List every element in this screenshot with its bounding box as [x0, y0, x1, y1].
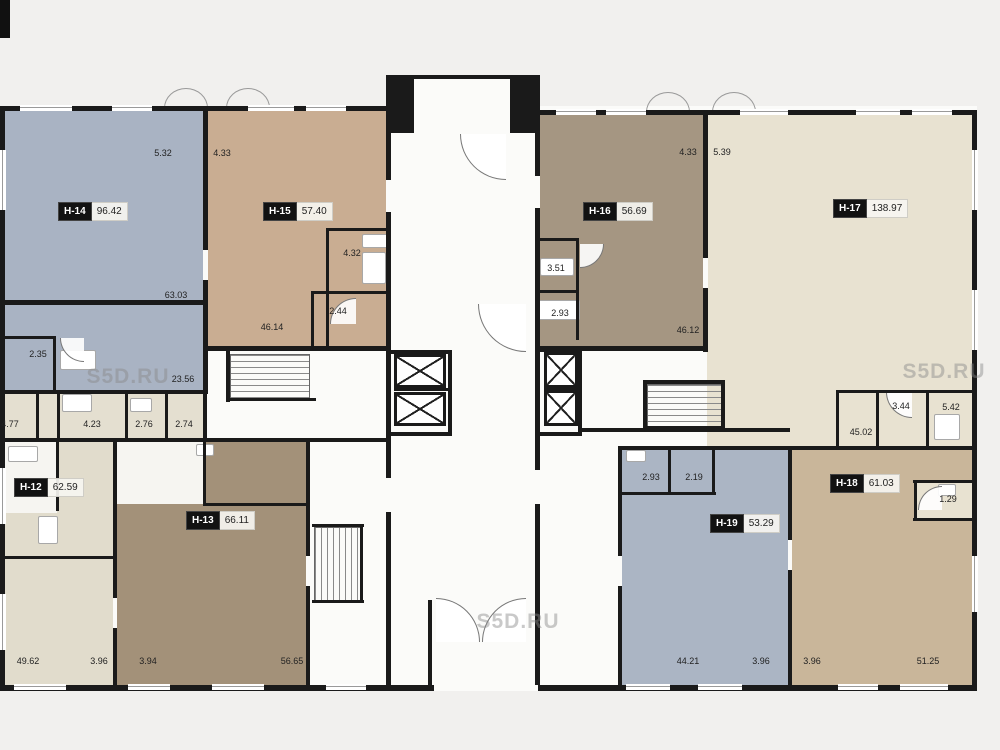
wall: [538, 238, 578, 241]
wall: [390, 432, 452, 436]
wall: [125, 392, 128, 439]
wall: [535, 75, 540, 689]
wall: [643, 380, 647, 430]
window: [912, 109, 952, 115]
dimension-label: 44.21: [677, 656, 700, 666]
door-gap: [703, 258, 708, 288]
unit-area-label: 53.29: [744, 514, 780, 533]
balcony-arc: [646, 92, 690, 112]
wall: [311, 291, 314, 348]
fixture: [626, 450, 646, 462]
wall: [311, 291, 390, 294]
wall: [578, 428, 790, 432]
unit-badge-h-19[interactable]: H-1953.29: [710, 514, 780, 533]
door-gap: [113, 598, 117, 628]
window: [112, 105, 152, 111]
window: [0, 150, 6, 210]
window: [128, 684, 170, 690]
fixture: [934, 414, 960, 440]
dimension-label: 3.94: [139, 656, 157, 666]
dimension-label: 56.65: [281, 656, 304, 666]
unit-id-label: H-18: [830, 474, 864, 493]
unit-id-label: H-19: [710, 514, 744, 533]
window: [248, 105, 294, 111]
room-area: [0, 392, 204, 438]
window: [606, 109, 646, 115]
window: [856, 109, 900, 115]
dimension-label: 46.14: [261, 322, 284, 332]
watermark: S5D.RU: [476, 610, 559, 634]
wall: [360, 524, 363, 603]
dimension-label: 3.96: [90, 656, 108, 666]
wall: [618, 492, 716, 495]
door-gap: [386, 180, 391, 212]
unit-badge-h-18[interactable]: H-1861.03: [830, 474, 900, 493]
unit-area-label: 61.03: [864, 474, 900, 493]
dimension-label: 4.77: [1, 419, 19, 429]
wall: [390, 350, 452, 354]
door-gap: [535, 470, 540, 504]
fixture: [362, 234, 388, 248]
dimension-label: 5.42: [942, 402, 960, 412]
wall: [448, 350, 452, 436]
unit-badge-h-15[interactable]: H-1557.40: [263, 202, 333, 221]
unit-area-label: 56.69: [617, 202, 653, 221]
unit-badge-h-17[interactable]: H-17138.97: [833, 199, 908, 218]
wall: [0, 556, 113, 559]
wall: [643, 380, 725, 384]
dimension-label: 4.32: [343, 248, 361, 258]
balcony-arc: [164, 88, 208, 108]
room-area: [116, 441, 204, 504]
dimension-label: 1.29: [939, 494, 957, 504]
unit-id-label: H-15: [263, 202, 297, 221]
wall: [538, 290, 578, 293]
unit-id-label: H-16: [583, 202, 617, 221]
fixture: [8, 446, 38, 462]
unit-area-label: 138.97: [867, 199, 909, 218]
dimension-label: 4.33: [213, 148, 231, 158]
wall: [57, 392, 60, 439]
window: [900, 684, 948, 690]
wall: [544, 388, 580, 391]
stairs: [230, 354, 310, 400]
wall: [203, 503, 306, 506]
wall: [428, 600, 432, 686]
window: [212, 684, 264, 690]
unit-badge-h-14[interactable]: H-1496.42: [58, 202, 128, 221]
unit-badge-h-16[interactable]: H-1656.69: [583, 202, 653, 221]
unit-id-label: H-13: [186, 511, 220, 530]
dimension-label: 3.96: [803, 656, 821, 666]
dimension-label: 3.44: [892, 401, 910, 411]
wall: [388, 75, 414, 133]
dimension-label: 2.19: [685, 472, 703, 482]
dimension-label: 49.62: [17, 656, 40, 666]
stairs: [314, 527, 362, 602]
wall: [386, 75, 391, 689]
wall: [165, 392, 168, 439]
unit-id-label: H-12: [14, 478, 48, 497]
dimension-label: 2.44: [329, 306, 347, 316]
window: [0, 468, 6, 524]
dimension-label: 5.39: [713, 147, 731, 157]
door-gap: [535, 176, 540, 208]
door-gap: [386, 478, 391, 512]
unit-area-label: 96.42: [92, 202, 128, 221]
wall: [226, 398, 316, 401]
wall: [326, 228, 329, 348]
dimension-label: 2.93: [642, 472, 660, 482]
dimension-label: 23.56: [172, 374, 195, 384]
window: [626, 684, 670, 690]
dimension-label: 5.32: [154, 148, 172, 158]
wall: [578, 348, 582, 436]
wall: [540, 348, 582, 352]
wall: [876, 390, 879, 450]
door-gap: [788, 540, 792, 570]
wall: [836, 390, 975, 393]
unit-id-label: H-17: [833, 199, 867, 218]
window: [838, 684, 878, 690]
window: [306, 105, 346, 111]
window: [698, 684, 742, 690]
unit-area-label: 66.11: [220, 511, 255, 530]
unit-area-label: 62.59: [48, 478, 84, 497]
wall: [0, 300, 205, 305]
wall: [326, 228, 390, 231]
wall: [226, 350, 230, 402]
wall: [56, 441, 59, 511]
fixture: [362, 252, 386, 284]
fixture: [38, 516, 58, 544]
unit-region-h19[interactable]: [621, 449, 789, 686]
door-gap: [203, 250, 208, 280]
wall: [0, 336, 55, 339]
wall: [703, 110, 708, 352]
window: [14, 684, 66, 690]
dimension-label: 51.25: [917, 656, 940, 666]
watermark: S5D.RU: [902, 360, 985, 384]
wall: [113, 441, 117, 689]
wall: [53, 336, 56, 392]
elevator-shaft: [544, 390, 578, 426]
wall: [312, 524, 364, 527]
dimension-label: 45.02: [850, 427, 873, 437]
wall: [203, 346, 390, 351]
wall: [721, 380, 725, 430]
unit-badge-h-12[interactable]: H-1262.59: [14, 478, 84, 497]
dimension-label: 4.33: [679, 147, 697, 157]
dimension-label: 2.76: [135, 419, 153, 429]
window: [740, 109, 788, 115]
door-gap: [306, 556, 310, 586]
wall: [510, 75, 536, 133]
floor-plan-canvas: 5.324.3363.0346.142.444.322.3523.564.774…: [0, 0, 1000, 750]
wall: [913, 480, 975, 483]
window: [556, 109, 596, 115]
elevator-shaft: [394, 354, 446, 388]
wall: [712, 450, 715, 494]
wall: [394, 388, 448, 391]
wall: [576, 238, 579, 340]
unit-badge-h-13[interactable]: H-1366.11: [186, 511, 255, 530]
fixture: [62, 394, 92, 412]
wall: [618, 446, 977, 450]
wall: [926, 390, 929, 450]
elevator-shaft: [394, 392, 446, 426]
window: [326, 684, 366, 690]
wall: [312, 600, 364, 603]
door-gap: [618, 556, 622, 586]
wall: [540, 432, 582, 436]
wall: [914, 482, 917, 520]
dimension-label: 3.51: [547, 263, 565, 273]
dimension-label: 2.74: [175, 419, 193, 429]
wall: [836, 390, 839, 448]
window: [972, 556, 978, 612]
window: [0, 594, 6, 650]
wall: [668, 450, 671, 494]
dimension-label: 46.12: [677, 325, 700, 335]
wall: [203, 392, 207, 440]
unit-id-label: H-14: [58, 202, 92, 221]
watermark: S5D.RU: [86, 365, 169, 389]
window: [20, 105, 72, 111]
dimension-label: 63.03: [165, 290, 188, 300]
elevator-shaft: [544, 352, 578, 388]
door-gap: [434, 685, 538, 691]
dimension-label: 2.35: [29, 349, 47, 359]
unit-region-h17[interactable]: [707, 114, 973, 448]
window: [972, 150, 978, 210]
fixture: [130, 398, 152, 412]
dimension-label: 3.96: [752, 656, 770, 666]
wall: [913, 518, 975, 521]
wall: [0, 390, 207, 394]
stairs: [647, 384, 723, 428]
dimension-label: 2.93: [551, 308, 569, 318]
wall: [36, 392, 39, 439]
dimension-label: 4.23: [83, 419, 101, 429]
corner-mark: [0, 0, 10, 38]
window: [972, 290, 978, 350]
unit-area-label: 57.40: [297, 202, 333, 221]
wall: [203, 441, 206, 505]
